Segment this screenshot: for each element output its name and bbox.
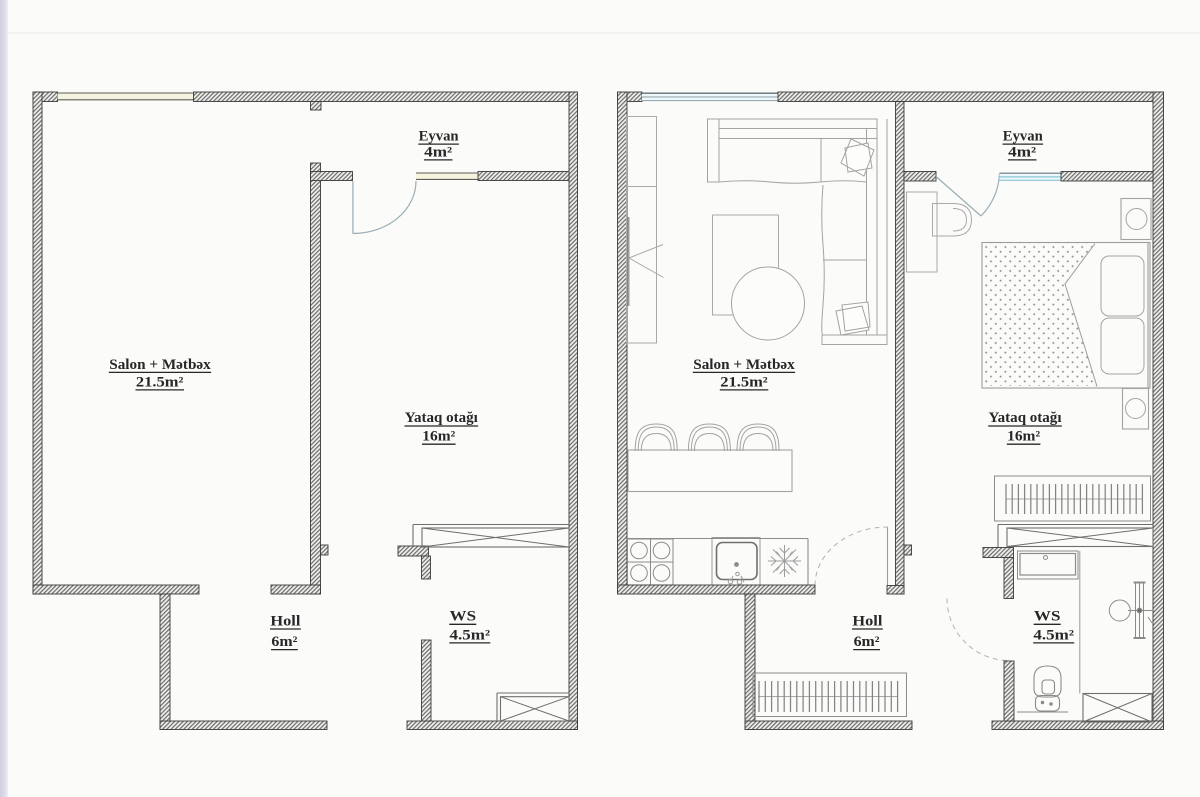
svg-text:WS: WS: [1034, 609, 1061, 625]
svg-text:4m²: 4m²: [1008, 144, 1036, 160]
svg-text:Yataq otağı: Yataq otağı: [989, 410, 1062, 426]
svg-text:Eyvan: Eyvan: [419, 129, 459, 145]
svg-text:WS: WS: [450, 609, 477, 625]
svg-text:21.5m²: 21.5m²: [720, 374, 768, 390]
svg-text:16m²: 16m²: [422, 429, 455, 445]
svg-text:16m²: 16m²: [1007, 429, 1040, 445]
svg-text:Holl: Holl: [852, 613, 882, 629]
svg-text:Eyvan: Eyvan: [1003, 129, 1043, 145]
svg-text:6m²: 6m²: [854, 634, 880, 650]
svg-text:Salon + Mətbəx: Salon + Mətbəx: [109, 357, 211, 373]
svg-text:4.5m²: 4.5m²: [1033, 627, 1074, 643]
svg-text:21.5m²: 21.5m²: [136, 374, 184, 390]
svg-text:Salon + Mətbəx: Salon + Mətbəx: [693, 357, 795, 373]
svg-text:Holl: Holl: [270, 613, 300, 629]
svg-text:Yataq otağı: Yataq otağı: [405, 410, 478, 426]
svg-text:6m²: 6m²: [271, 634, 297, 650]
svg-text:4.5m²: 4.5m²: [450, 627, 491, 643]
svg-text:4m²: 4m²: [424, 144, 452, 160]
